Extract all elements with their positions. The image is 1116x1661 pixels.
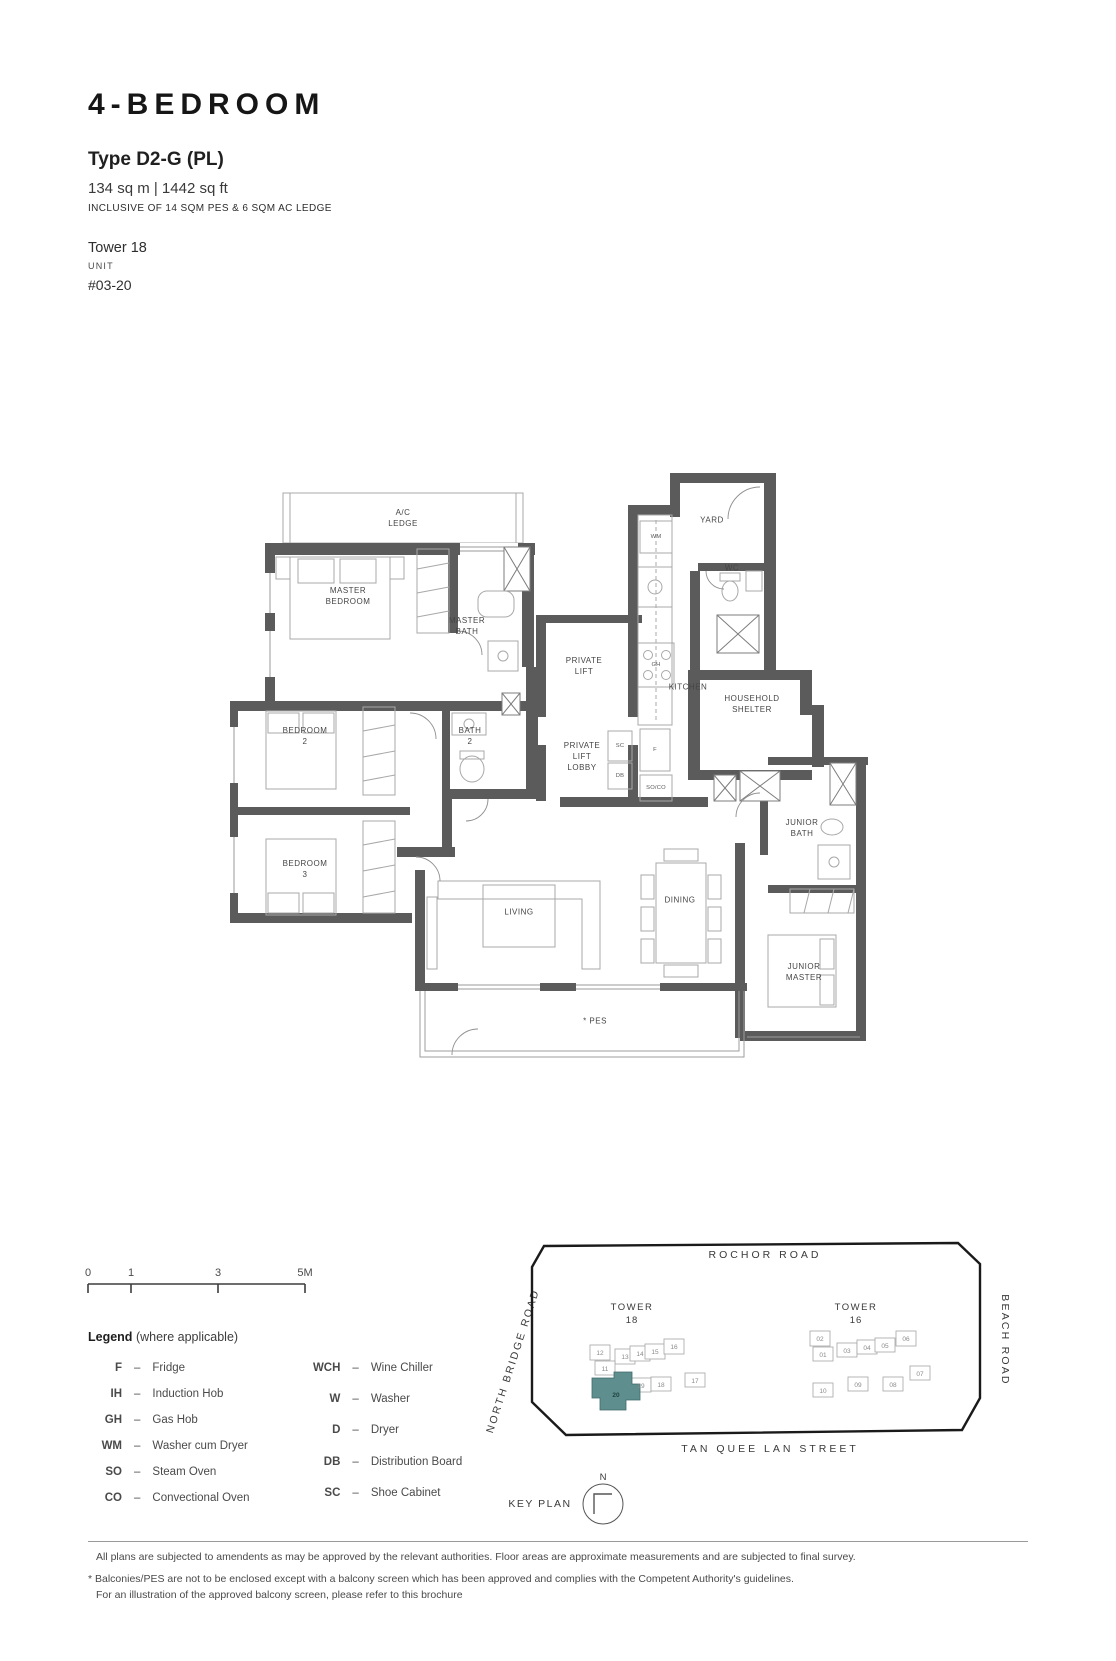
- scale-bar: 0 1 3 5M: [82, 1262, 327, 1309]
- legend-column-1: F–Fridge IH–Induction Hob GH–Gas Hob WM–…: [88, 1362, 272, 1518]
- unit-number-12: 12: [596, 1350, 604, 1357]
- legend-abbr: IH: [88, 1388, 122, 1414]
- legend: Legend (where applicable) F–Fridge IH–In…: [88, 1330, 518, 1518]
- appliance-label-f: F: [653, 747, 657, 753]
- legend-desc: Distribution Board: [371, 1456, 491, 1487]
- tower-18-number: 18: [626, 1315, 639, 1326]
- unit-number-10: 10: [819, 1388, 827, 1395]
- legend-abbr: WM: [88, 1440, 122, 1466]
- unit-number-17: 17: [691, 1378, 699, 1385]
- legend-abbr: SC: [300, 1487, 340, 1518]
- scale-bar-drawing: 0 1 3 5M: [82, 1262, 327, 1304]
- legend-abbr: DB: [300, 1456, 340, 1487]
- unit-number-04: 04: [863, 1345, 871, 1352]
- legend-abbr: F: [88, 1362, 122, 1388]
- road-label-beach: BEACH ROAD: [999, 1294, 1011, 1385]
- legend-row: F–Fridge: [88, 1362, 272, 1388]
- legend-row: WM–Washer cum Dryer: [88, 1440, 272, 1466]
- legend-desc: Steam Oven: [152, 1466, 272, 1492]
- appliance-label-sc: SC: [616, 743, 624, 749]
- tower-16-name: TOWER: [835, 1302, 878, 1313]
- footer-divider: [88, 1541, 1028, 1542]
- room-label-master-bath: MASTER BATH: [449, 616, 485, 638]
- legend-dash: –: [340, 1456, 370, 1487]
- legend-column-2: WCH–Wine Chiller W–Washer D–Dryer DB–Dis…: [300, 1362, 490, 1518]
- legend-row: D–Dryer: [300, 1424, 490, 1455]
- legend-desc: Wine Chiller: [371, 1362, 491, 1393]
- unit-number-11: 11: [602, 1366, 609, 1373]
- legend-dash: –: [340, 1362, 370, 1393]
- road-label-rochor: ROCHOR ROAD: [709, 1249, 822, 1261]
- footer-line-3: For an illustration of the approved balc…: [88, 1588, 1048, 1604]
- legend-desc: Convectional Oven: [152, 1492, 272, 1518]
- legend-desc: Washer cum Dryer: [152, 1440, 272, 1466]
- legend-desc: Washer: [371, 1393, 491, 1424]
- walls: [230, 473, 868, 1041]
- unit-area: 134 sq m | 1442 sq ft: [88, 180, 608, 197]
- legend-row: IH–Induction Hob: [88, 1388, 272, 1414]
- legend-dash: –: [122, 1492, 152, 1518]
- unit-number-20-highlighted: 20: [612, 1392, 620, 1399]
- appliance-label-gh: GH: [651, 662, 660, 668]
- legend-desc: Fridge: [152, 1362, 272, 1388]
- room-label-private-lift: PRIVATE LIFT: [566, 656, 603, 678]
- room-label-pes: * PES: [583, 1017, 607, 1028]
- room-label-household-shelter: HOUSEHOLD SHELTER: [724, 694, 779, 716]
- floor-plan-drawing: [220, 445, 868, 1060]
- legend-row: CO–Convectional Oven: [88, 1492, 272, 1518]
- unit-number-09: 09: [854, 1382, 862, 1389]
- scale-tick-1: 1: [128, 1267, 134, 1279]
- appliance-label-soco: SO/CO: [646, 785, 666, 791]
- unit-number-07: 07: [916, 1371, 924, 1378]
- legend-dash: –: [122, 1362, 152, 1388]
- room-label-yard: YARD: [700, 516, 724, 527]
- scale-tick-5m: 5M: [297, 1267, 312, 1279]
- legend-abbr: D: [300, 1424, 340, 1455]
- key-plan-drawing: ROCHOR ROAD TAN QUEE LAN STREET NORTH BR…: [480, 1172, 1050, 1542]
- unit-number: #03-20: [88, 277, 608, 293]
- room-label-private-lift-lobby: PRIVATE LIFT LOBBY: [564, 741, 601, 773]
- room-label-wc: WC: [725, 564, 739, 575]
- north-compass-icon: N: [583, 1472, 623, 1524]
- unit-type-code: Type D2-G (PL): [88, 149, 608, 171]
- legend-abbr: GH: [88, 1414, 122, 1440]
- legend-abbr: SO: [88, 1466, 122, 1492]
- legend-desc: Dryer: [371, 1424, 491, 1455]
- unit-number-16: 16: [670, 1344, 678, 1351]
- room-label-master-bedroom: MASTER BEDROOM: [326, 586, 371, 608]
- room-label-junior-bath: JUNIOR BATH: [786, 818, 819, 840]
- room-label-kitchen: KITCHEN: [669, 683, 708, 694]
- legend-abbr: W: [300, 1393, 340, 1424]
- unit-number-19: 19: [637, 1383, 645, 1390]
- legend-dash: –: [122, 1414, 152, 1440]
- road-label-north-bridge: NORTH BRIDGE ROAD: [484, 1287, 542, 1434]
- tower-18-units: [590, 1339, 705, 1410]
- unit-number-08: 08: [889, 1382, 897, 1389]
- header: 4-BEDROOM Type D2-G (PL) 134 sq m | 1442…: [88, 88, 608, 293]
- unit-number-14: 14: [636, 1351, 644, 1358]
- unit-label: UNIT: [88, 261, 608, 271]
- tower-16-number: 16: [850, 1315, 863, 1326]
- scale-tick-0: 0: [85, 1267, 91, 1279]
- unit-area-note: INCLUSIVE OF 14 SQM PES & 6 SQM AC LEDGE: [88, 203, 608, 214]
- room-label-living: LIVING: [504, 908, 533, 919]
- unit-number-06: 06: [902, 1336, 910, 1343]
- unit-number-02: 02: [816, 1336, 824, 1343]
- legend-row: SC–Shoe Cabinet: [300, 1487, 490, 1518]
- footer-line-1: All plans are subjected to amendents as …: [88, 1550, 1048, 1566]
- room-label-dining: DINING: [665, 896, 696, 907]
- unit-number-15: 15: [651, 1349, 659, 1356]
- tower-16-units: [810, 1331, 930, 1397]
- unit-number-03: 03: [843, 1348, 851, 1355]
- key-plan: ROCHOR ROAD TAN QUEE LAN STREET NORTH BR…: [480, 1172, 1050, 1542]
- legend-row: DB–Distribution Board: [300, 1456, 490, 1487]
- legend-desc: Shoe Cabinet: [371, 1487, 491, 1518]
- legend-desc: Gas Hob: [152, 1414, 272, 1440]
- unit-number-05: 05: [881, 1343, 889, 1350]
- unit-number-01: 01: [819, 1352, 827, 1359]
- legend-dash: –: [340, 1393, 370, 1424]
- legend-abbr: CO: [88, 1492, 122, 1518]
- floor-plan: A/C LEDGE MASTER BEDROOM MASTER BATH BED…: [220, 445, 868, 1060]
- appliance-label-wm: WM: [651, 534, 662, 540]
- appliance-label-db: DB: [616, 773, 624, 779]
- tower-16-label: TOWER 16: [835, 1302, 878, 1326]
- legend-dash: –: [340, 1487, 370, 1518]
- road-label-tan-quee-lan: TAN QUEE LAN STREET: [681, 1443, 859, 1455]
- unit-number-13: 13: [621, 1354, 629, 1361]
- unit-number-18: 18: [657, 1382, 665, 1389]
- legend-title-word: Legend: [88, 1330, 132, 1344]
- legend-dash: –: [122, 1440, 152, 1466]
- room-label-bedroom-3: BEDROOM 3: [283, 859, 328, 881]
- footer-line-2: * Balconies/PES are not to be enclosed e…: [88, 1572, 1048, 1588]
- legend-title: Legend (where applicable): [88, 1330, 518, 1344]
- legend-dash: –: [122, 1466, 152, 1492]
- legend-row: SO–Steam Oven: [88, 1466, 272, 1492]
- room-label-junior-master: JUNIOR MASTER: [786, 962, 822, 984]
- legend-row: WCH–Wine Chiller: [300, 1362, 490, 1393]
- footer-disclaimer: All plans are subjected to amendents as …: [88, 1550, 1048, 1603]
- tower-name: Tower 18: [88, 240, 608, 256]
- page-title: 4-BEDROOM: [88, 88, 608, 122]
- room-label-ac-ledge: A/C LEDGE: [388, 508, 418, 530]
- legend-row: W–Washer: [300, 1393, 490, 1424]
- tower-18-name: TOWER: [611, 1302, 654, 1313]
- scale-tick-3: 3: [215, 1267, 221, 1279]
- room-label-bedroom-2: BEDROOM 2: [283, 726, 328, 748]
- key-plan-label: KEY PLAN: [508, 1498, 571, 1510]
- tower-18-label: TOWER 18: [611, 1302, 654, 1326]
- pes-outline: [420, 991, 860, 1057]
- legend-desc: Induction Hob: [152, 1388, 272, 1414]
- legend-dash: –: [340, 1424, 370, 1455]
- legend-row: GH–Gas Hob: [88, 1414, 272, 1440]
- legend-abbr: WCH: [300, 1362, 340, 1393]
- room-label-bath-2: BATH 2: [459, 726, 482, 748]
- legend-dash: –: [122, 1388, 152, 1414]
- legend-title-note: (where applicable): [136, 1330, 238, 1344]
- north-letter: N: [600, 1472, 607, 1483]
